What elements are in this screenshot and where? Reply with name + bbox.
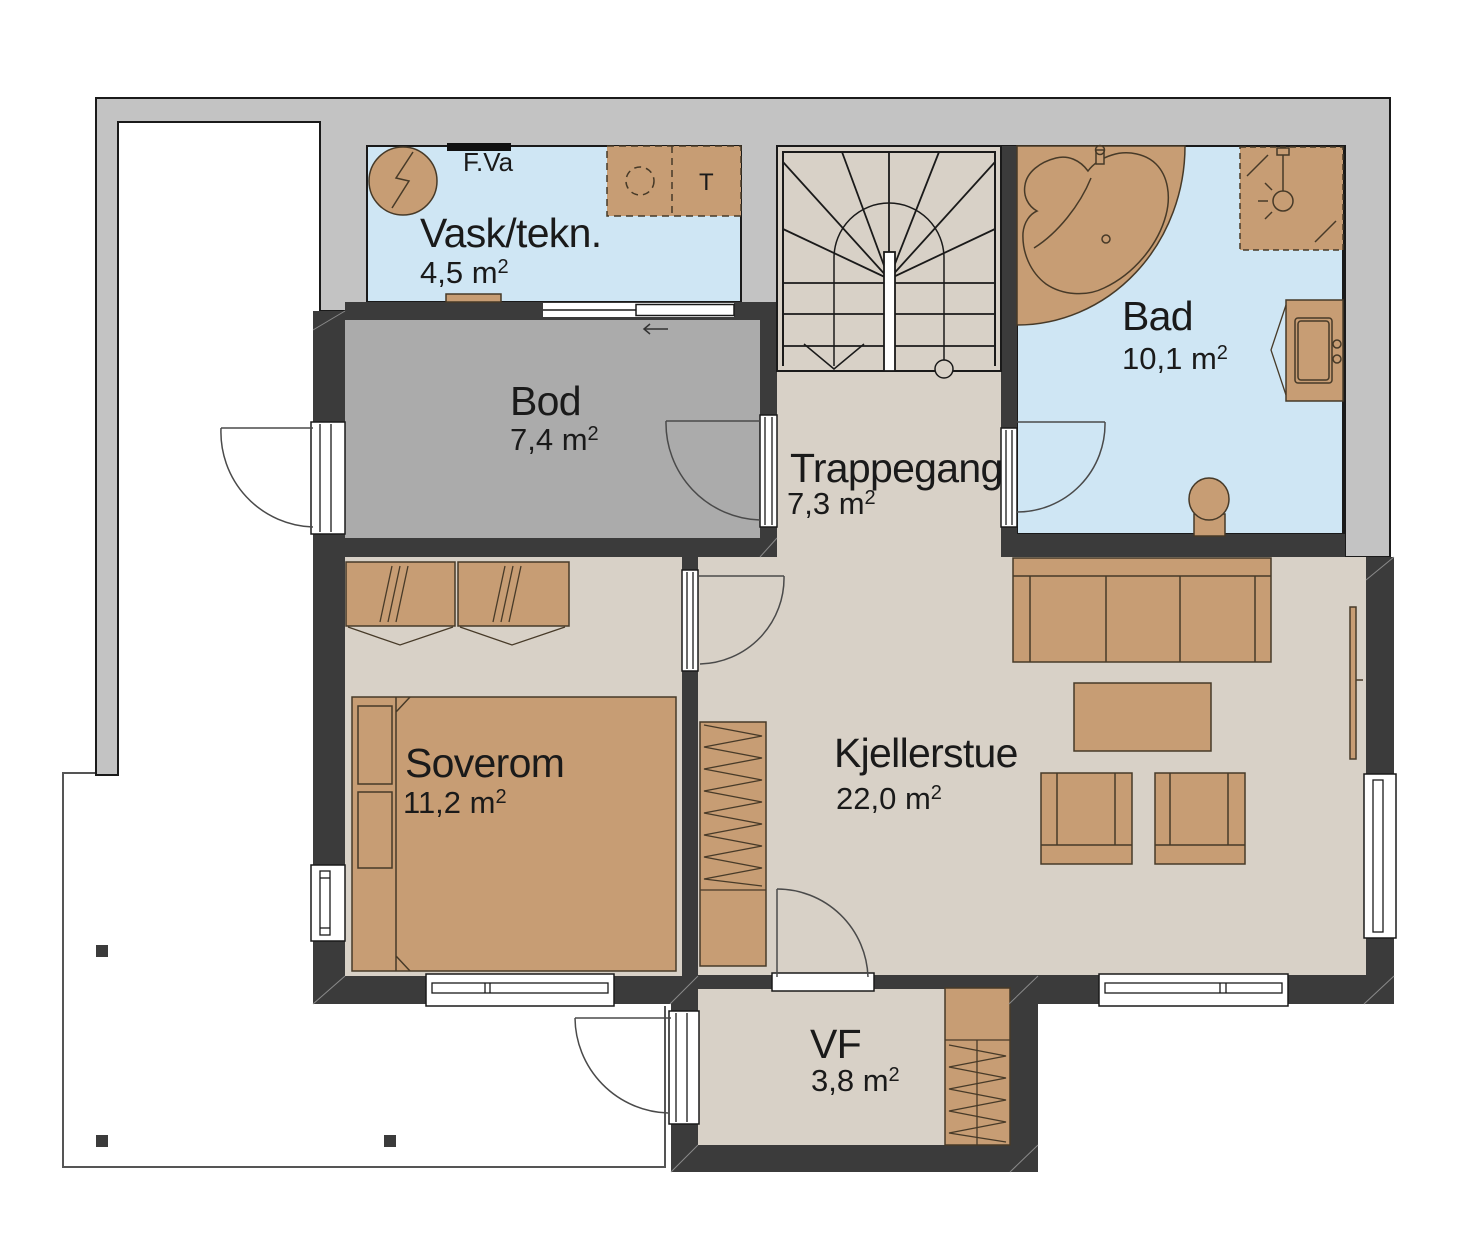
svg-text:Bod: Bod [510, 378, 581, 424]
svg-text:VF: VF [810, 1021, 861, 1067]
svg-text:4,5 m2: 4,5 m2 [420, 255, 509, 290]
svg-text:3,8 m2: 3,8 m2 [811, 1063, 900, 1098]
svg-text:7,3 m2: 7,3 m2 [787, 486, 876, 521]
svg-text:Soverom: Soverom [405, 740, 564, 786]
svg-text:T: T [699, 169, 714, 196]
svg-text:Kjellerstue: Kjellerstue [834, 730, 1018, 776]
svg-text:11,2 m2: 11,2 m2 [403, 785, 507, 820]
svg-text:10,1 m2: 10,1 m2 [1122, 341, 1228, 376]
svg-text:Bad: Bad [1122, 293, 1193, 339]
svg-text:Trappegang: Trappegang [790, 445, 1003, 491]
svg-text:22,0 m2: 22,0 m2 [836, 781, 942, 816]
svg-text:7,4 m2: 7,4 m2 [510, 422, 599, 457]
svg-text:F.Va: F.Va [463, 147, 514, 177]
svg-text:Vask/tekn.: Vask/tekn. [420, 210, 601, 256]
